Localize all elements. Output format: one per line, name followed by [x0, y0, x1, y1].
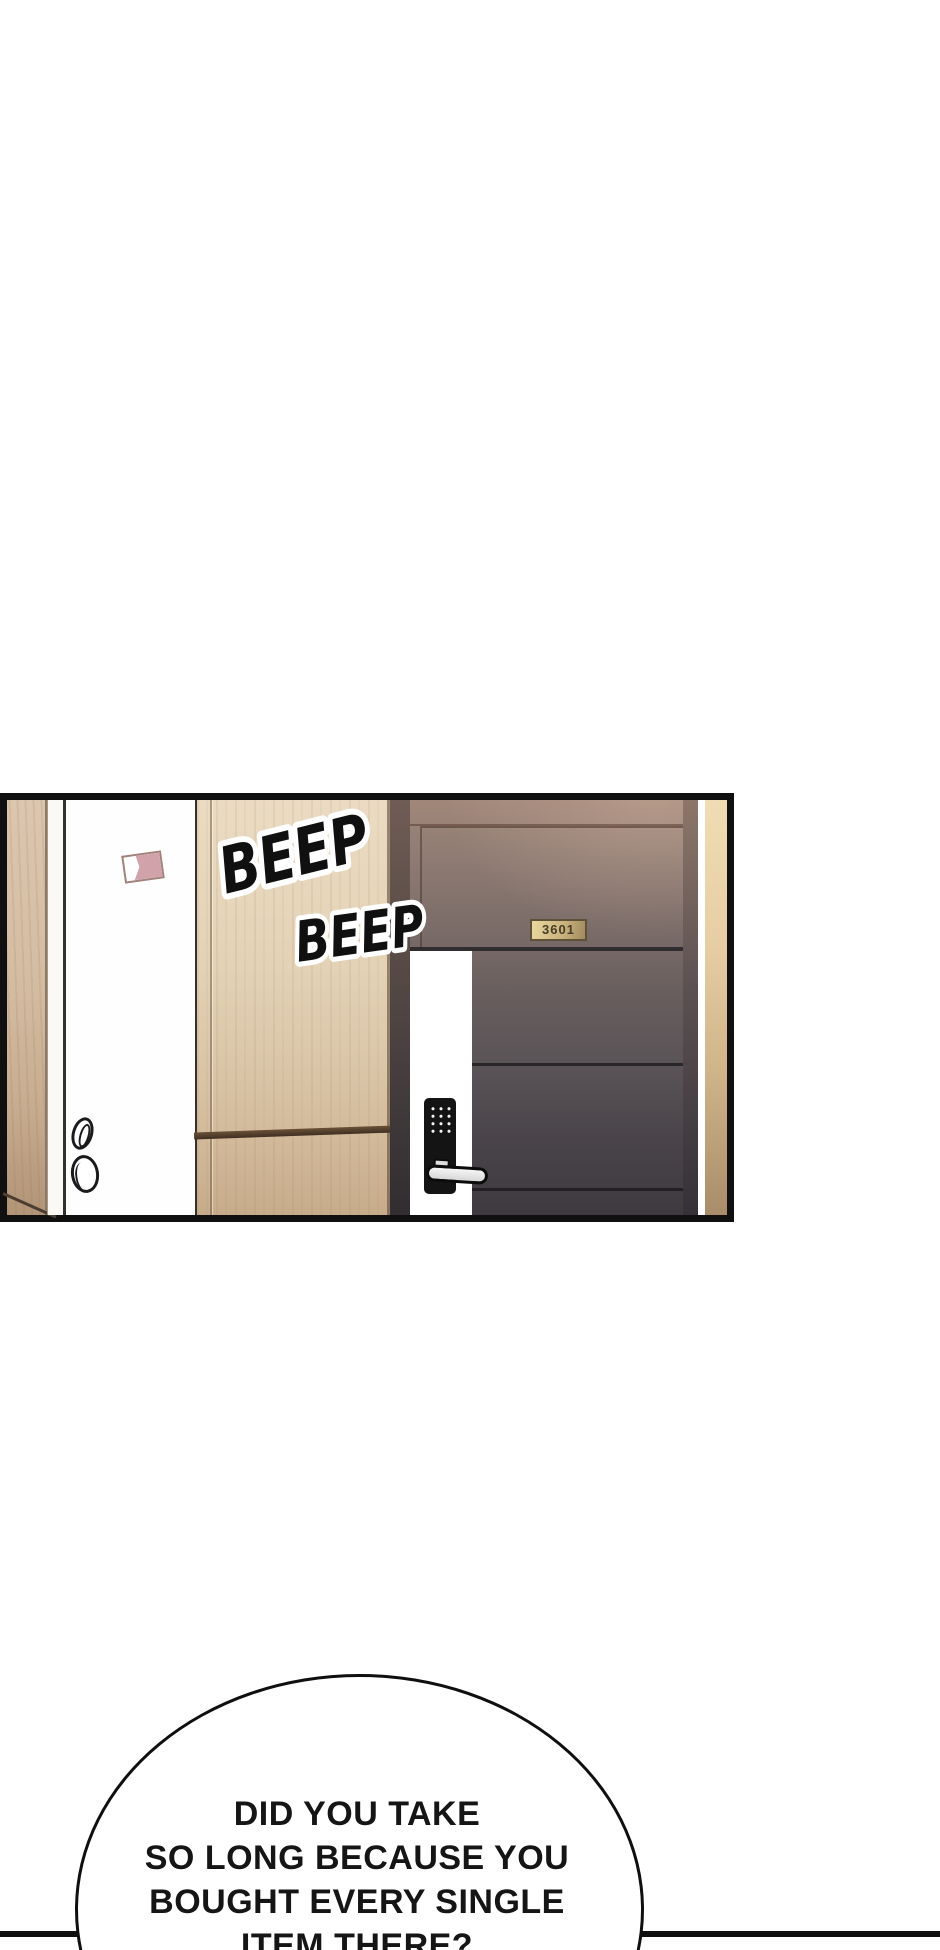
door-frame-white [47, 800, 63, 1215]
door-knob-side [73, 1161, 93, 1191]
door-number-plate: 3601 [530, 919, 587, 941]
hallway-left-wall [7, 800, 47, 1215]
speech-line: SO LONG BECAUSE YOU [77, 1836, 637, 1880]
door-right-edge [683, 800, 698, 1215]
speech-line: BOUGHT EVERY SINGLE [77, 1880, 637, 1924]
speech-bubble-text: DID YOU TAKE SO LONG BECAUSE YOU BOUGHT … [77, 1792, 637, 1950]
apartment-door: 3601 [410, 800, 698, 1215]
hallway-right-wall-strip [705, 800, 727, 1215]
speech-line: ITEM THERE? [77, 1924, 637, 1950]
comic-page: 3601 BEEP BEEP DID YOU TAKE SO LONG BECA… [0, 0, 940, 1950]
wood-panel-groove-horizontal [194, 1126, 394, 1140]
speech-line: DID YOU TAKE [77, 1792, 637, 1836]
card-reader-plate [121, 850, 165, 883]
keypad-buttons [429, 1105, 452, 1135]
svg-text:BEEP: BEEP [291, 893, 429, 975]
card-reader-pink-card [124, 853, 163, 882]
door-handle-mount [433, 1159, 449, 1168]
comic-panel: 3601 BEEP BEEP [0, 793, 734, 1222]
sfx-beep-2: BEEP [255, 881, 465, 991]
